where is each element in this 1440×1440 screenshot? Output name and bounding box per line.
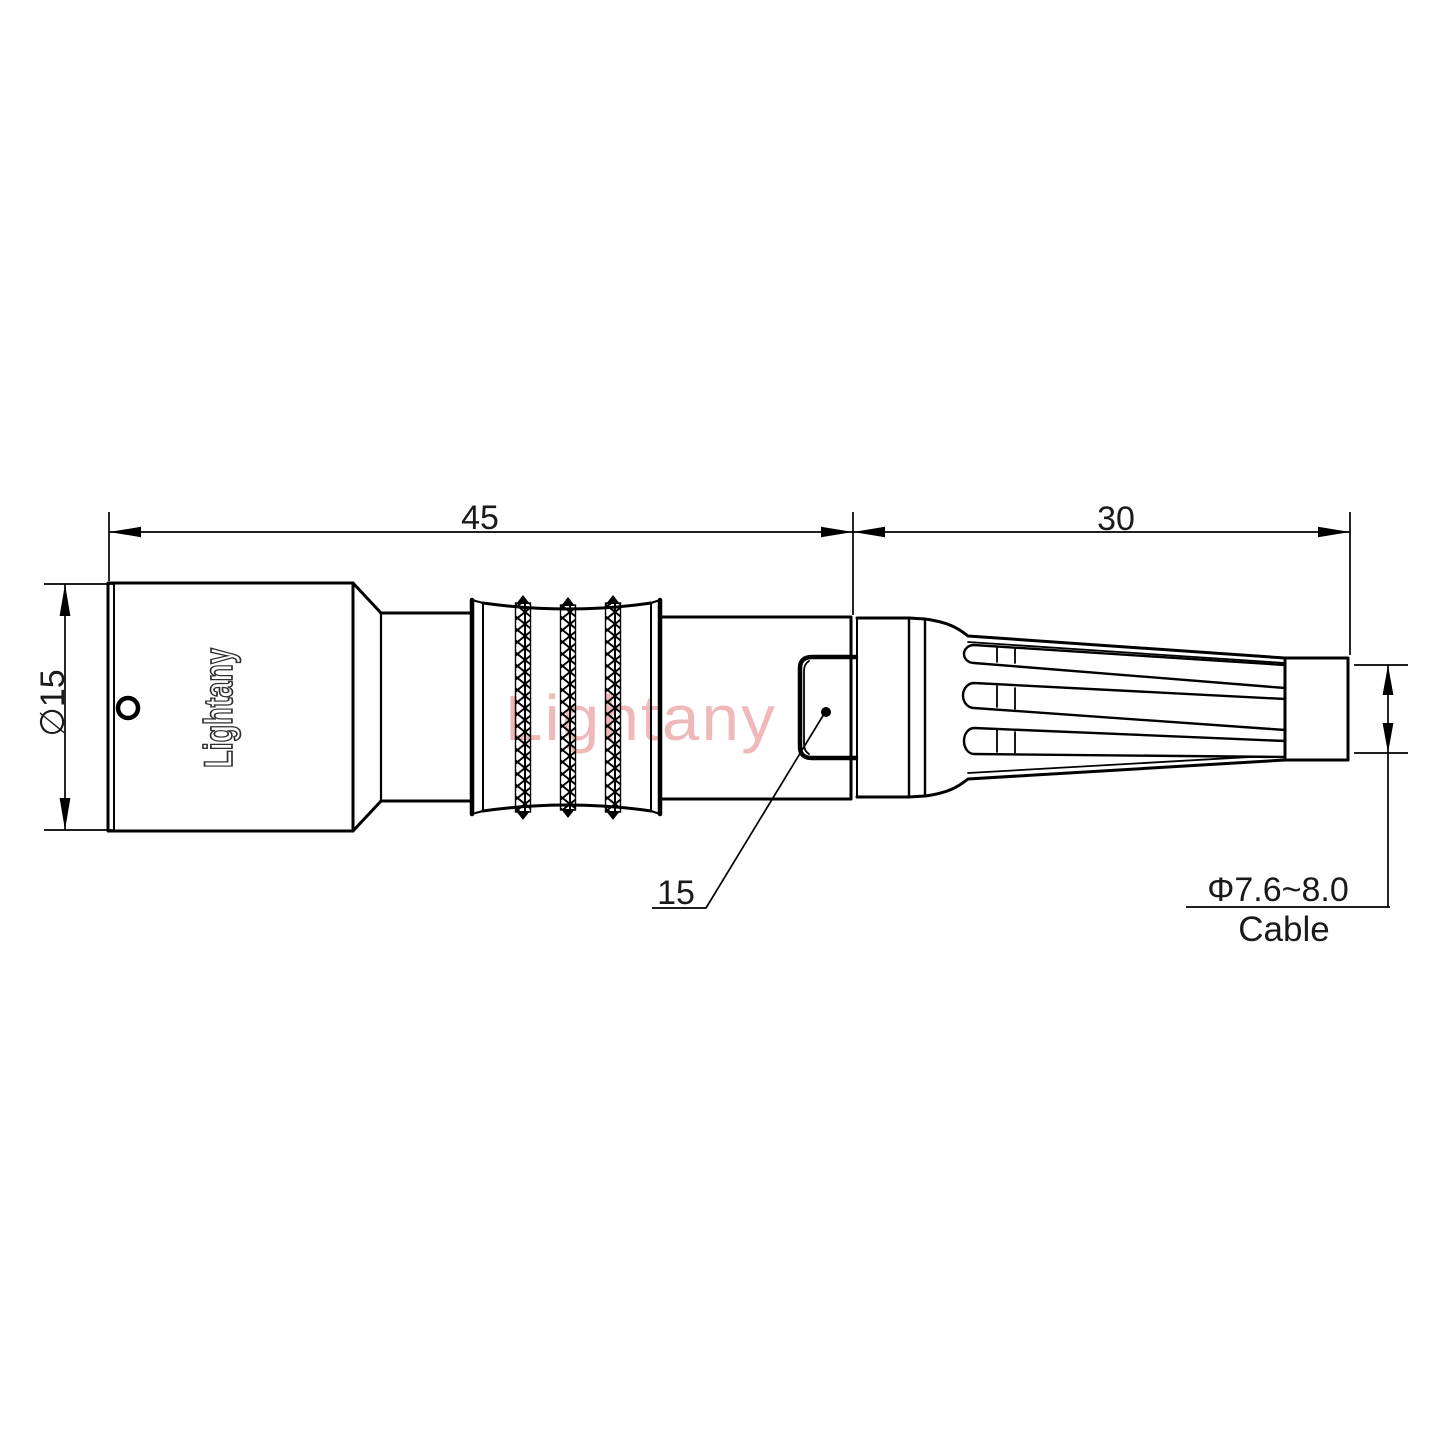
dim-label-diameter-15: ∅15 <box>34 669 72 736</box>
body-logo-text: Lightany <box>197 647 241 768</box>
dim-label-latch-15: 15 <box>657 874 695 912</box>
dim-label-30: 30 <box>1097 500 1135 538</box>
cable-label: Cable <box>1238 910 1329 949</box>
knurl-band <box>561 597 576 818</box>
latch-leader-dot <box>821 707 831 717</box>
drawing-sheet: Lightany <box>0 0 1440 1440</box>
knurl-band-strip <box>606 603 621 812</box>
dim-label-cable-diameter: Φ7.6~8.0 <box>1207 871 1349 909</box>
cable-end-cap <box>1285 658 1348 760</box>
knurl-band-strip <box>561 605 576 810</box>
knurl-band <box>606 595 621 820</box>
connector-technical-drawing: Lightany <box>0 0 1440 1440</box>
knurl-band-strip <box>516 603 531 812</box>
dim-label-45: 45 <box>461 499 499 537</box>
knurl-band <box>516 595 531 820</box>
watermark-text: Lightany <box>505 682 777 754</box>
